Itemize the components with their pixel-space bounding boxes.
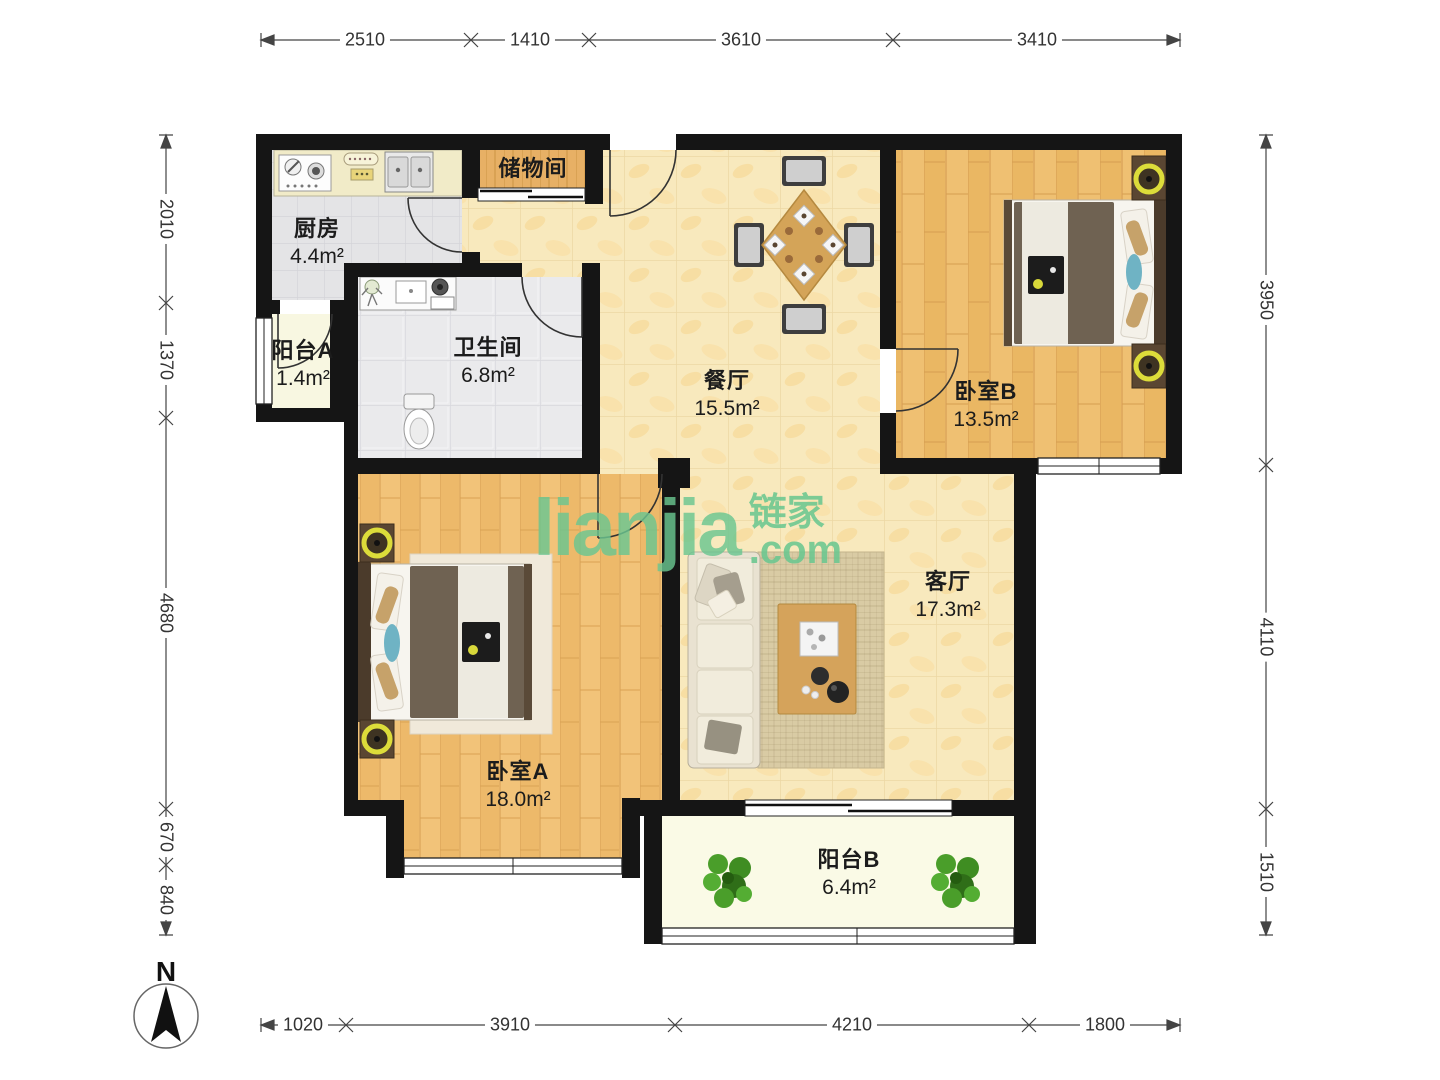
dim-top-4: 3410 xyxy=(1012,30,1062,51)
room-label-bedroom-b: 卧室B 13.5m² xyxy=(953,378,1018,434)
room-name: 阳台B xyxy=(818,846,881,874)
room-area: 18.0m² xyxy=(485,786,550,814)
room-area: 4.4m² xyxy=(290,243,344,271)
room-label-balcony-b: 阳台B 6.4m² xyxy=(818,846,881,902)
compass-north-label: N xyxy=(156,956,176,988)
room-name: 客厅 xyxy=(915,568,980,596)
dim-left-3: 4680 xyxy=(156,588,177,638)
dim-right-3: 1510 xyxy=(1256,847,1277,897)
room-name: 卧室B xyxy=(953,378,1018,406)
room-name: 阳台A xyxy=(272,337,335,365)
compass-icon xyxy=(134,984,198,1048)
room-area: 1.4m² xyxy=(272,365,335,393)
dim-left-5: 840 xyxy=(156,880,177,920)
room-label-living: 客厅 17.3m² xyxy=(915,568,980,624)
dim-left-4: 670 xyxy=(156,817,177,857)
dim-left-2: 1370 xyxy=(156,335,177,385)
room-area: 15.5m² xyxy=(694,395,759,423)
toilet-icon xyxy=(404,394,434,449)
room-area: 6.4m² xyxy=(818,874,881,902)
room-label-dining: 餐厅 15.5m² xyxy=(694,367,759,423)
bathroom-vanity-icon xyxy=(360,277,456,310)
room-label-kitchen: 厨房 4.4m² xyxy=(290,215,344,271)
room-label-bedroom-a: 卧室A 18.0m² xyxy=(485,758,550,814)
room-name: 餐厅 xyxy=(694,367,759,395)
room-label-balcony-a: 阳台A 1.4m² xyxy=(272,337,335,393)
dim-left-1: 2010 xyxy=(156,194,177,244)
room-label-storage: 储物间 xyxy=(498,155,567,183)
dim-top-3: 3610 xyxy=(716,30,766,51)
bedroom-a-bay-floor xyxy=(404,816,622,860)
room-name: 卫生间 xyxy=(453,334,522,362)
dim-bottom-3: 4210 xyxy=(827,1015,877,1036)
room-name: 厨房 xyxy=(290,215,344,243)
floor-plan-page: 厨房 4.4m² 储物间 阳台A 1.4m² 卫生间 6.8m² 餐厅 15.5… xyxy=(0,0,1440,1080)
kitchen-counter-icon xyxy=(274,150,462,196)
room-area: 13.5m² xyxy=(953,406,1018,434)
bedroom-a-bed-icon xyxy=(356,524,552,758)
room-area: 6.8m² xyxy=(453,362,522,390)
room-name: 储物间 xyxy=(498,155,567,183)
dim-bottom-4: 1800 xyxy=(1080,1015,1130,1036)
room-label-bathroom: 卫生间 6.8m² xyxy=(453,334,522,390)
dim-bottom-1: 1020 xyxy=(278,1015,328,1036)
dim-top-2: 1410 xyxy=(505,30,555,51)
room-area: 17.3m² xyxy=(915,596,980,624)
room-name: 卧室A xyxy=(485,758,550,786)
dim-bottom-2: 3910 xyxy=(485,1015,535,1036)
coffee-table-icon xyxy=(778,604,856,714)
floor-plan-canvas xyxy=(0,0,1440,1080)
dim-right-1: 3950 xyxy=(1256,275,1277,325)
dim-right-2: 4110 xyxy=(1256,613,1277,662)
dim-top-1: 2510 xyxy=(340,30,390,51)
